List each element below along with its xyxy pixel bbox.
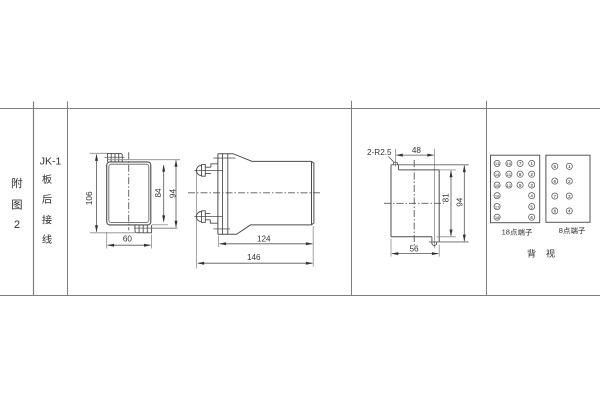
svg-text:9: 9 (519, 183, 522, 188)
svg-text:3: 3 (530, 183, 533, 188)
svg-text:124: 124 (257, 235, 271, 244)
svg-text:4: 4 (530, 193, 533, 198)
svg-text:16: 16 (495, 193, 500, 198)
svg-text:13: 13 (495, 161, 500, 166)
svg-text:6: 6 (530, 215, 533, 220)
svg-text:5: 5 (530, 204, 533, 209)
svg-text:18: 18 (495, 215, 500, 220)
svg-text:94: 94 (455, 197, 464, 207)
svg-text:1: 1 (530, 161, 533, 166)
svg-text:12: 12 (507, 183, 512, 188)
svg-text:106: 106 (85, 191, 94, 205)
svg-text:8: 8 (554, 209, 557, 214)
svg-text:8: 8 (519, 172, 522, 177)
svg-text:84: 84 (154, 188, 163, 198)
svg-text:8: 8 (559, 226, 563, 235)
svg-text:7: 7 (519, 161, 522, 166)
svg-text:18: 18 (502, 228, 510, 237)
svg-text:2: 2 (14, 219, 20, 231)
svg-text:14: 14 (495, 172, 500, 177)
svg-text:5: 5 (554, 164, 557, 169)
svg-text:2-R2.5: 2-R2.5 (367, 148, 392, 157)
svg-text:15: 15 (495, 183, 500, 188)
svg-text:146: 146 (247, 253, 261, 262)
svg-text:94: 94 (169, 189, 178, 199)
svg-text:17: 17 (495, 204, 500, 209)
svg-text:2: 2 (530, 172, 533, 177)
svg-text:48: 48 (412, 146, 422, 155)
svg-text:2: 2 (568, 179, 571, 184)
svg-text:JK-1: JK-1 (40, 155, 62, 167)
svg-text:1: 1 (568, 164, 571, 169)
svg-text:4: 4 (568, 209, 571, 214)
svg-text:6: 6 (554, 179, 557, 184)
svg-text:60: 60 (123, 235, 133, 244)
svg-text:3: 3 (568, 194, 571, 199)
svg-text:7: 7 (554, 194, 557, 199)
svg-text:10: 10 (507, 161, 512, 166)
svg-text:81: 81 (442, 193, 451, 203)
svg-text:56: 56 (409, 245, 419, 254)
